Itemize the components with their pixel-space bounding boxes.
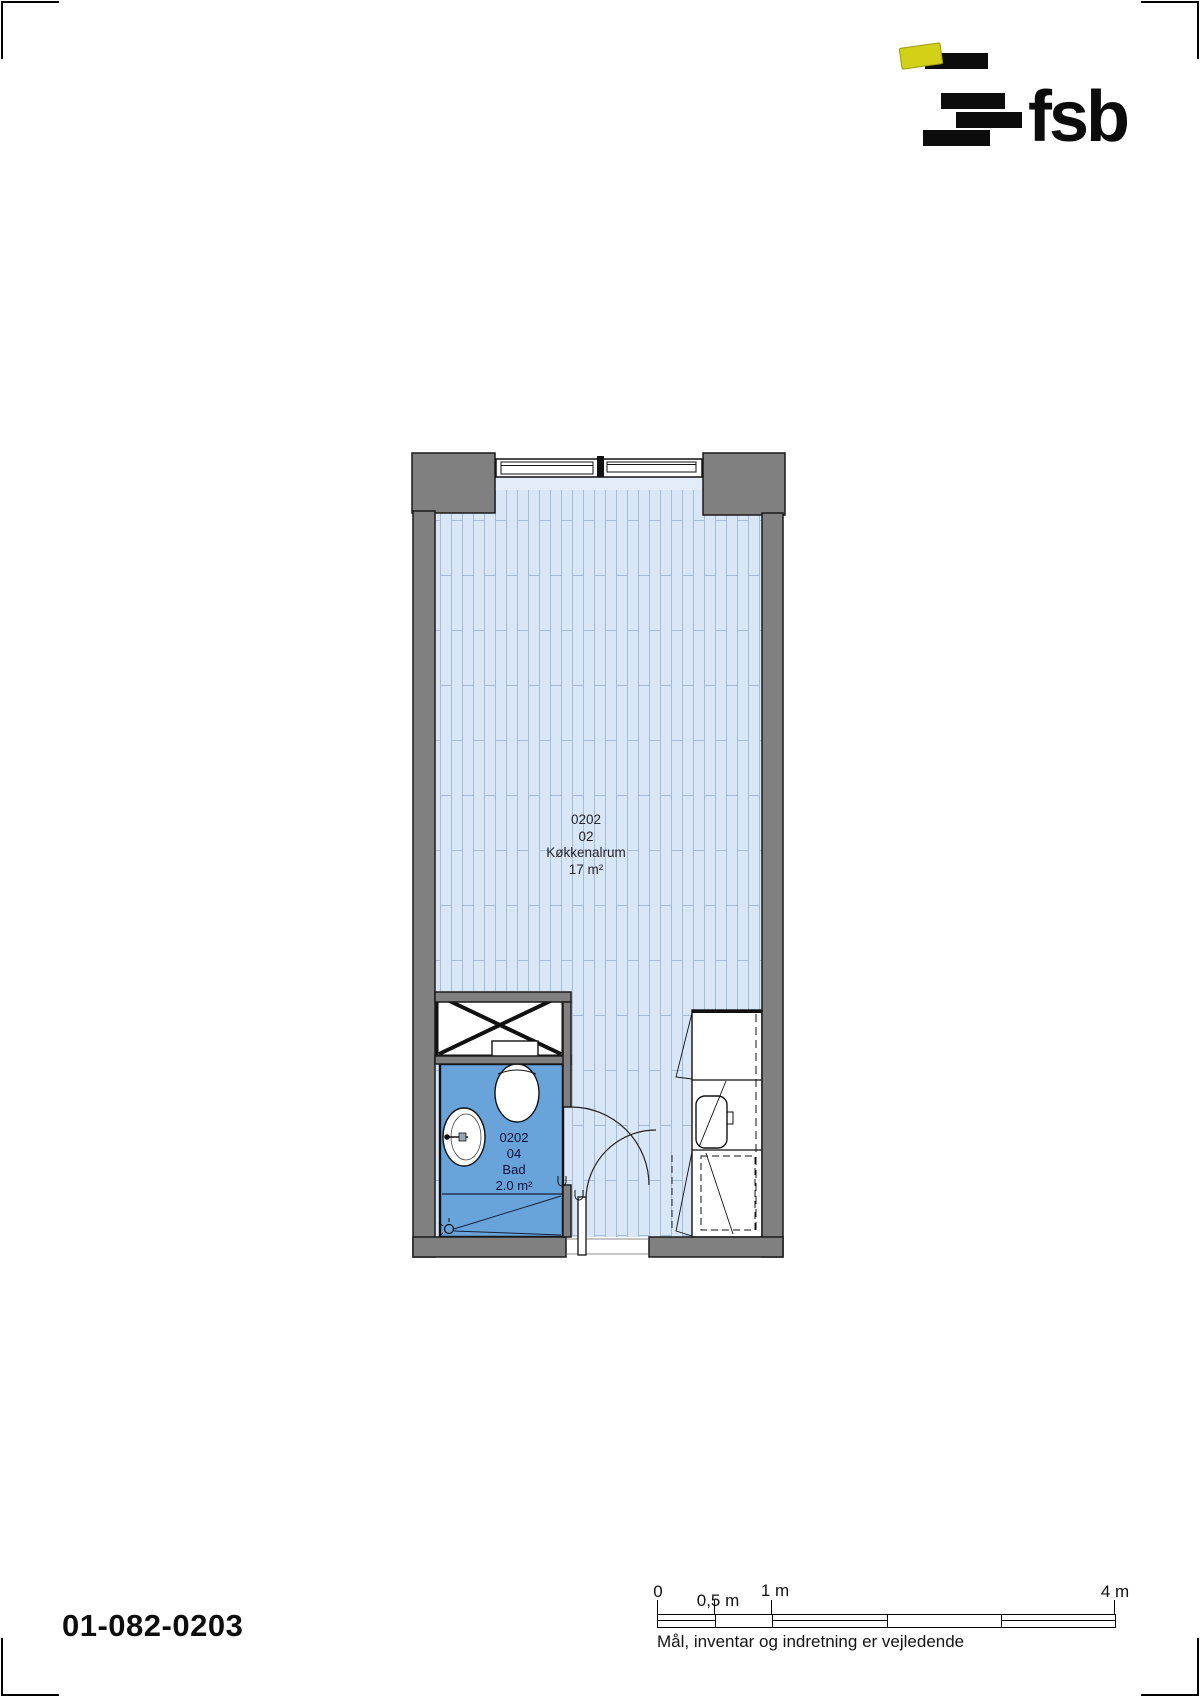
sink-icon: [443, 1108, 485, 1166]
wall-bath-right: [563, 1002, 571, 1107]
bath-label-unit: 04: [507, 1146, 521, 1161]
wall-bottom-left: [413, 1237, 566, 1257]
kitchen-sink-basin: [696, 1096, 727, 1148]
corner-mark-bottom-left: [1, 1638, 59, 1696]
scale-divider: [715, 1615, 716, 1627]
wall-bath-right-stub: [563, 1185, 571, 1237]
scale-segment: [1001, 1620, 1115, 1621]
wall-wardrobe-top: [435, 992, 571, 1002]
logo-text: fsb: [1028, 81, 1127, 153]
entry-door-leaf: [578, 1197, 586, 1255]
scale-divider: [772, 1615, 773, 1627]
scale-bar: 0 0,5 m 1 m 4 m Mål, inventar og indretn…: [640, 1578, 1160, 1658]
scale-segment: [658, 1620, 715, 1621]
wall-top-right-block: [703, 453, 785, 515]
wall-right: [762, 513, 783, 1257]
main-label-area: 17 m²: [569, 862, 604, 877]
bath-label-number: 0202: [500, 1130, 529, 1145]
window-right: [607, 462, 696, 472]
wall-bottom-right: [649, 1237, 783, 1257]
bathroom: 0202 04 Bad 2.0 m²: [439, 1064, 563, 1240]
scale-tick: [1114, 1600, 1115, 1614]
scale-label-05m: 0,5 m: [688, 1591, 748, 1611]
scale-label-4m: 4 m: [1085, 1582, 1145, 1602]
bath-label-name: Bad: [502, 1162, 525, 1177]
logo-brick-icon: [941, 93, 1005, 109]
wall-left: [413, 511, 435, 1257]
window-band: [496, 456, 702, 477]
main-label-unit: 02: [578, 829, 593, 844]
scale-label-0: 0: [628, 1582, 688, 1602]
scale-tick: [771, 1600, 772, 1614]
wall-top-left-block: [412, 453, 495, 513]
wardrobe-box: [437, 994, 563, 1063]
scale-label-1m: 1 m: [745, 1581, 805, 1601]
scale-segment: [772, 1620, 887, 1621]
drawing-number: 01-082-0203: [62, 1608, 243, 1644]
main-label-name: Køkkenalrum: [546, 845, 626, 860]
toilet-icon: [495, 1064, 539, 1122]
scale-disclaimer: Mål, inventar og indretning er vejledend…: [657, 1632, 964, 1652]
bath-label-area: 2.0 m²: [496, 1178, 534, 1193]
wall-wardrobe-bottom: [435, 1056, 571, 1064]
scale-divider: [887, 1615, 888, 1627]
logo-brick-icon: [956, 112, 1022, 128]
scale-divider: [1001, 1615, 1002, 1627]
window-divider: [597, 456, 604, 477]
scale-bar-rule: [657, 1614, 1116, 1628]
page: fsb: [0, 0, 1200, 1697]
window-left: [501, 462, 593, 474]
fsb-logo: fsb: [900, 45, 1180, 160]
scale-tick: [657, 1600, 658, 1614]
floor-plan: 0202 04 Bad 2.0 m²: [380, 440, 810, 1280]
main-label-number: 0202: [571, 812, 601, 827]
corner-mark-top-left: [1, 1, 59, 59]
logo-brick-icon: [923, 130, 990, 146]
scale-tick: [714, 1600, 715, 1614]
